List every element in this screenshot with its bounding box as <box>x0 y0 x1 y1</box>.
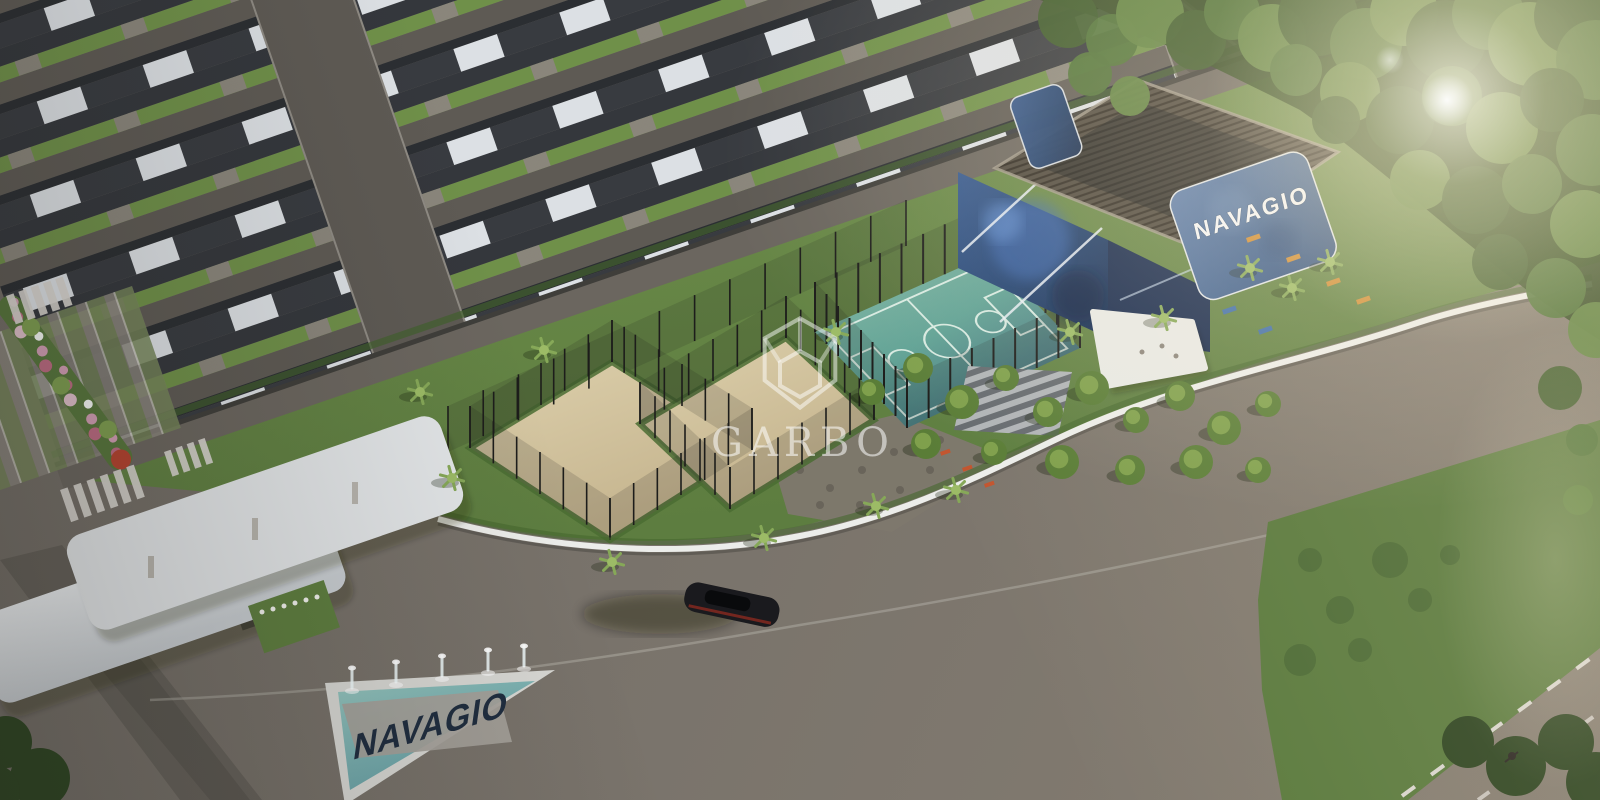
median-bush <box>1284 644 1316 676</box>
orchard-tree-highlight <box>1258 394 1272 408</box>
jet-splash <box>517 666 531 672</box>
jet-spray <box>348 666 356 671</box>
lounger <box>984 481 995 488</box>
palm-crown <box>415 387 425 397</box>
jet-splash <box>481 670 495 676</box>
garbo-watermark: GARBO <box>700 316 900 466</box>
white-flower <box>293 601 298 606</box>
tree-canopy <box>1068 52 1112 96</box>
car <box>582 580 782 634</box>
tree-canopy <box>1563 485 1593 515</box>
orchard-tree-highlight <box>1119 459 1136 476</box>
median-bush <box>1348 638 1372 662</box>
white-flower <box>304 598 309 603</box>
palm-crown <box>447 473 457 483</box>
tree-canopy <box>1442 166 1510 234</box>
tree-canopy <box>1538 366 1582 410</box>
orchard-tree-highlight <box>1212 416 1231 435</box>
entrance-fountain: NAVAGIO <box>325 644 555 800</box>
tree-canopy <box>1526 258 1586 318</box>
median-bush <box>1326 596 1354 624</box>
orchard-tree-highlight <box>1126 410 1140 424</box>
tree-canopy <box>1390 150 1450 210</box>
palm-crown <box>1287 283 1297 293</box>
aerial-render-scene: NAVAGIO <box>0 0 1600 800</box>
palm-crown <box>759 533 769 543</box>
orchard-tree-highlight <box>1080 376 1099 395</box>
tree-canopy <box>1270 44 1322 96</box>
white-flower <box>315 595 320 600</box>
paver-stone <box>858 466 866 474</box>
orchard-tree-highlight <box>996 368 1010 382</box>
tree-canopy <box>1502 154 1562 214</box>
watermark-text: GARBO <box>700 420 900 466</box>
white-flower <box>260 610 265 615</box>
orchard-tree-highlight <box>1169 385 1186 402</box>
orchard-tree-highlight <box>1050 450 1069 469</box>
tree-canopy <box>1442 716 1494 768</box>
tree-canopy <box>1110 76 1150 116</box>
gem-hexagon-icon <box>760 316 840 410</box>
palm-crown <box>1065 327 1075 337</box>
palm-crown <box>1325 257 1335 267</box>
palm-crown <box>539 345 549 355</box>
palm-crown <box>607 557 617 567</box>
orchard-tree-highlight <box>1037 401 1054 418</box>
orchard-tree-highlight <box>915 433 932 450</box>
paver-stone <box>816 501 824 509</box>
tree-canopy <box>1566 424 1598 456</box>
palm-crown <box>871 501 881 511</box>
orchard-tree-highlight <box>950 390 969 409</box>
jet-spray <box>484 648 492 653</box>
palm-crown <box>951 485 961 495</box>
paver-stone <box>896 486 904 494</box>
median-bush <box>1298 548 1322 572</box>
orchard-tree-highlight <box>1184 450 1203 469</box>
tree-canopy <box>1486 736 1546 796</box>
jet-spray <box>520 644 528 649</box>
orchard-tree-highlight <box>907 357 924 374</box>
median-bush <box>1408 588 1432 612</box>
jet-splash <box>345 688 359 694</box>
palm-crown <box>1159 313 1169 323</box>
white-flower <box>271 607 276 612</box>
tree-canopy <box>1472 234 1528 290</box>
palm-crown <box>1245 263 1255 273</box>
jet-splash <box>435 676 449 682</box>
jet-spray <box>438 654 446 659</box>
orchard-tree-highlight <box>984 442 998 456</box>
median-bush <box>1372 542 1408 578</box>
white-flower <box>282 604 287 609</box>
orchard-tree-highlight <box>1248 460 1262 474</box>
paver-stone <box>826 484 834 492</box>
median-bush <box>1440 545 1460 565</box>
jet-spray <box>392 660 400 665</box>
jet-splash <box>389 682 403 688</box>
paver-stone <box>926 466 934 474</box>
tree-canopy <box>1312 96 1360 144</box>
